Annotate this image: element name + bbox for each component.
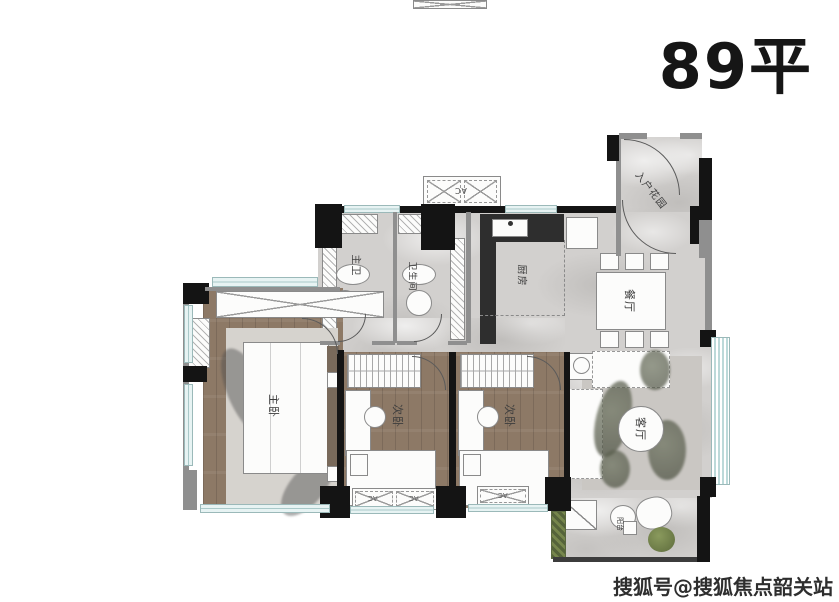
wall: [607, 135, 619, 161]
dining-chair: [625, 331, 644, 348]
wall: [680, 133, 702, 139]
label-kitchen: 厨房: [516, 265, 531, 287]
wall: [205, 287, 340, 291]
label-ac: AC: [498, 491, 508, 499]
label-bath: 卫生间: [407, 261, 420, 291]
wall: [372, 341, 395, 345]
watermark: 搜狐号@搜狐焦点韶关站: [613, 571, 833, 600]
planter-strip: [551, 511, 566, 559]
wall: [436, 486, 466, 518]
page-title: 89平: [659, 16, 813, 106]
bedroom2-chair: [364, 406, 386, 428]
wall: [545, 477, 571, 511]
window: [468, 504, 548, 512]
wall: [393, 212, 397, 343]
label-balcony: 阳台: [615, 517, 625, 531]
bedroom2-pillow: [350, 454, 368, 476]
wall: [448, 341, 467, 345]
kitchen-faucet: [508, 221, 513, 226]
bedroom2-wardrobe: [347, 354, 421, 388]
side-table-fan-icon: [573, 357, 590, 374]
fridge: [566, 217, 598, 249]
wall: [320, 486, 350, 518]
ac-cell: [464, 180, 497, 203]
wall: [705, 244, 712, 332]
dining-chair: [600, 331, 619, 348]
plant: [640, 350, 670, 390]
masterbath-shower: [338, 214, 378, 234]
window: [184, 384, 193, 466]
window: [200, 504, 330, 513]
wall: [466, 212, 471, 343]
label-ac: AC: [454, 186, 467, 195]
bay-window: [711, 337, 730, 485]
window: [350, 506, 434, 514]
label-master-bath: 主卫: [350, 255, 365, 277]
wall: [700, 477, 716, 497]
wall: [315, 204, 342, 248]
window: [212, 277, 318, 287]
wall: [185, 470, 197, 510]
bath-sink: [406, 290, 432, 316]
dining-chair: [650, 331, 669, 348]
label-dining: 餐厅: [622, 289, 638, 313]
plant: [600, 450, 630, 488]
top-edge-fragment: [413, 0, 487, 9]
floorplan-page: 89平 搜狐号@搜狐焦点韶关站: [0, 0, 839, 602]
bedroom3-chair: [477, 406, 499, 428]
balcony-rail: [553, 557, 705, 562]
wall: [183, 366, 207, 382]
window: [344, 205, 400, 213]
wall: [699, 158, 712, 220]
window: [184, 305, 193, 363]
window: [505, 205, 557, 213]
label-bedroom2: 次卧: [390, 404, 406, 428]
bed-seam: [300, 343, 301, 473]
dining-chair: [625, 253, 644, 270]
label-ac: AC: [368, 494, 378, 502]
bath-vanity: [450, 238, 465, 340]
wall: [697, 496, 710, 562]
label-living: 客厅: [633, 417, 649, 441]
master-bed: [243, 342, 329, 474]
balcony-mini-table: [623, 521, 637, 535]
label-ac: AC: [409, 494, 419, 502]
bedroom3-wardrobe: [460, 354, 534, 388]
dining-chair: [650, 253, 669, 270]
wall: [421, 204, 455, 250]
label-bedroom3: 次卧: [502, 404, 518, 428]
bedroom3-pillow: [463, 454, 481, 476]
balcony-plant: [648, 527, 675, 552]
label-master-bedroom: 主卧: [266, 394, 282, 418]
